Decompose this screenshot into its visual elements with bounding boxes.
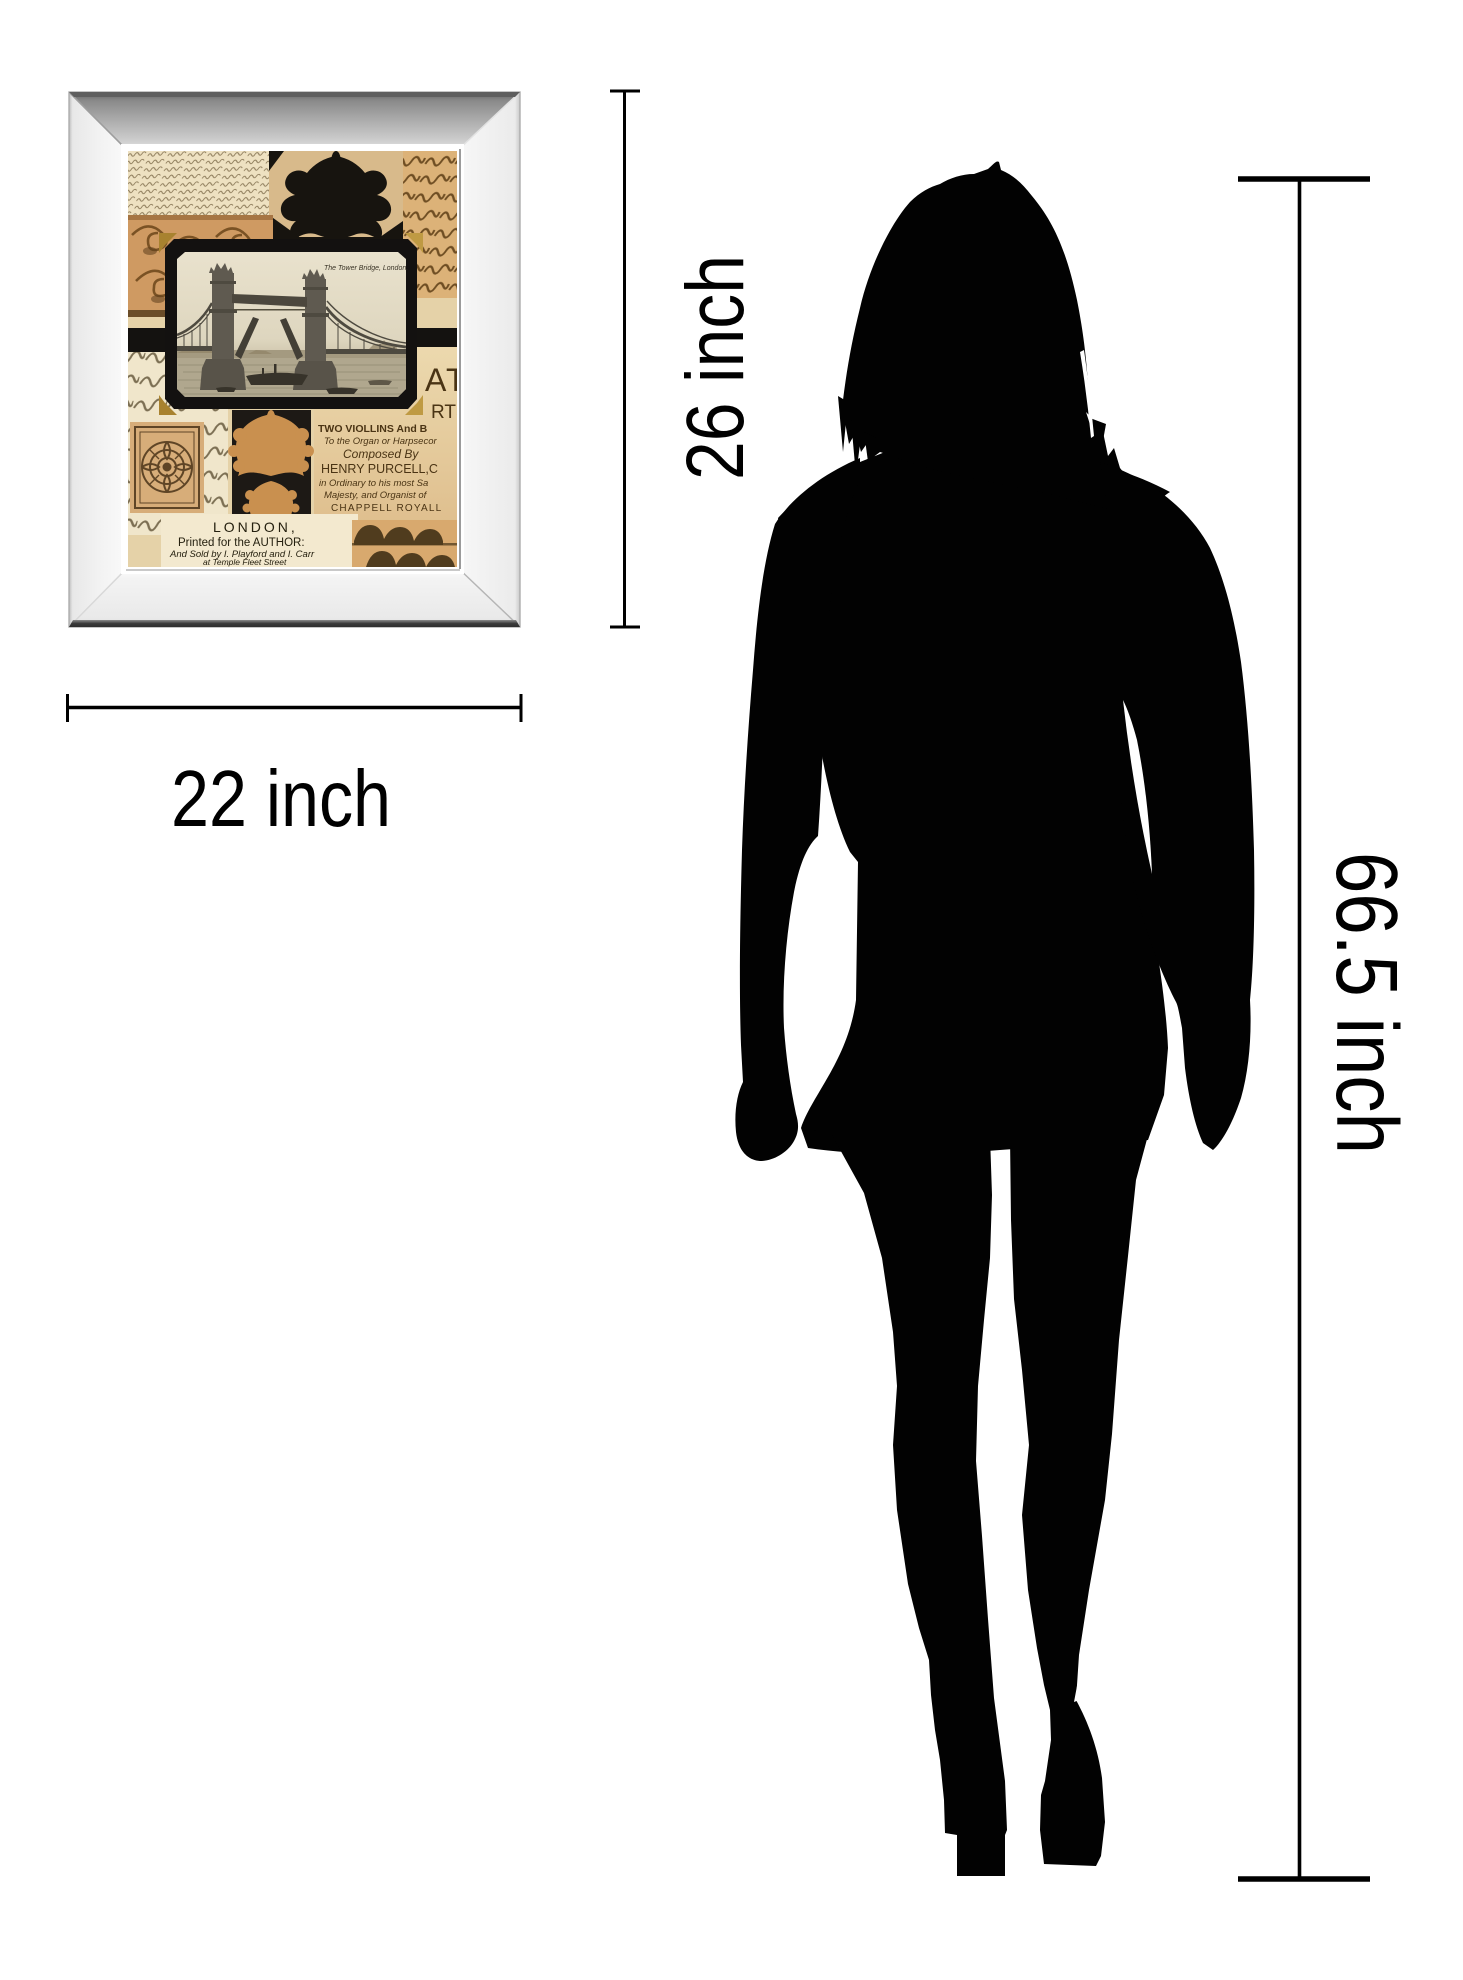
svg-text:Printed for the AUTHOR:: Printed for the AUTHOR: <box>178 537 305 549</box>
svg-text:CHAPPELL ROYALL: CHAPPELL ROYALL <box>331 503 442 514</box>
svg-text:LONDON,: LONDON, <box>213 519 298 535</box>
svg-text:66.5 inch: 66.5 inch <box>1318 852 1415 1154</box>
svg-text:at Temple Fleet Street: at Temple Fleet Street <box>203 557 287 567</box>
svg-text:To the Organ or Harpsecor: To the Organ or Harpsecor <box>324 436 437 447</box>
svg-text:TWO VIOLLINS And B: TWO VIOLLINS And B <box>318 423 428 435</box>
svg-text:22 inch: 22 inch <box>171 754 391 843</box>
svg-text:Majesty, and Organist of: Majesty, and Organist of <box>324 490 428 501</box>
svg-text:HENRY PURCELL,C: HENRY PURCELL,C <box>321 462 438 476</box>
svg-text:26 inch: 26 inch <box>670 255 761 480</box>
svg-text:Composed By: Composed By <box>343 447 419 461</box>
svg-text:in Ordinary to his most Sa: in Ordinary to his most Sa <box>319 478 428 489</box>
svg-text:The Tower Bridge, London.: The Tower Bridge, London. <box>324 265 408 272</box>
